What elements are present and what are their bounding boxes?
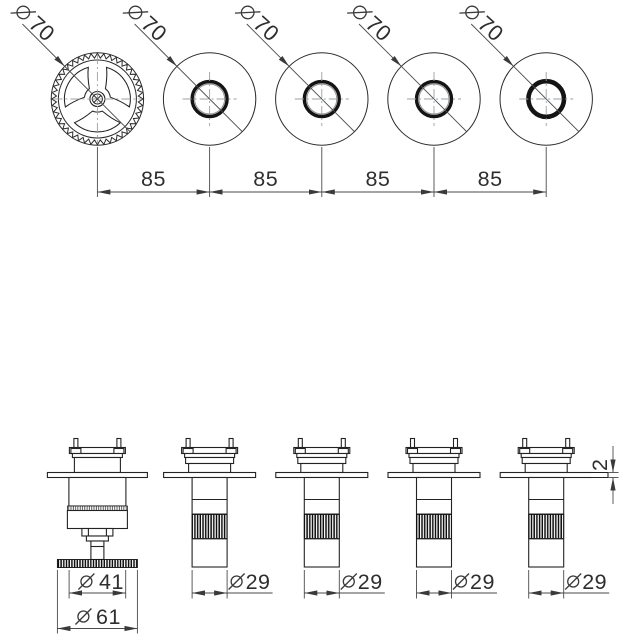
diameter-label: 70 xyxy=(233,0,284,46)
tube-diameter-value: 29 xyxy=(470,570,495,594)
spacing-value: 85 xyxy=(478,167,503,191)
tube-diameter-value: 29 xyxy=(246,570,271,594)
technical-drawing-page: 70 70 70 70 70 xyxy=(0,0,628,640)
faucet-technical-drawing: 70 70 70 70 70 xyxy=(0,0,628,640)
diameter-value: 70 xyxy=(473,11,509,47)
diameter-value: 70 xyxy=(361,11,397,47)
diameter-value: 70 xyxy=(136,11,172,47)
valve-body xyxy=(69,478,126,507)
tube-diameter-value: 29 xyxy=(358,570,383,594)
plate-thickness-value: 2 xyxy=(588,459,612,471)
valve-neck xyxy=(74,458,120,473)
top-view: 70 70 70 70 70 xyxy=(9,0,593,197)
spacing-value: 85 xyxy=(253,167,278,191)
tube-diameter-value: 29 xyxy=(582,570,607,594)
diameter-value: 70 xyxy=(249,11,285,47)
spacing-value: 85 xyxy=(365,167,390,191)
diameter-label: 70 xyxy=(121,0,172,46)
wall-plate xyxy=(47,473,147,478)
knurled-collar-edge xyxy=(67,506,127,511)
wheel-knurl-band xyxy=(57,560,137,568)
plate-thickness-dimension: 2 xyxy=(588,446,619,504)
wheel-diameter-label: 61 xyxy=(75,605,121,629)
knob-diameter-label: 41 xyxy=(78,570,124,594)
diameter-value: 70 xyxy=(24,11,60,47)
diameter-label: 70 xyxy=(9,0,60,46)
diameter-label: 70 xyxy=(457,0,508,46)
diameter-value: 41 xyxy=(99,570,124,594)
knob-collar xyxy=(67,511,127,529)
diameter-label: 70 xyxy=(345,0,396,46)
spacing-value: 85 xyxy=(141,167,166,191)
wheel-stem xyxy=(91,541,104,560)
side-view: 41 61 29 29 29 29 2 xyxy=(47,439,618,634)
diameter-value: 61 xyxy=(96,605,121,629)
